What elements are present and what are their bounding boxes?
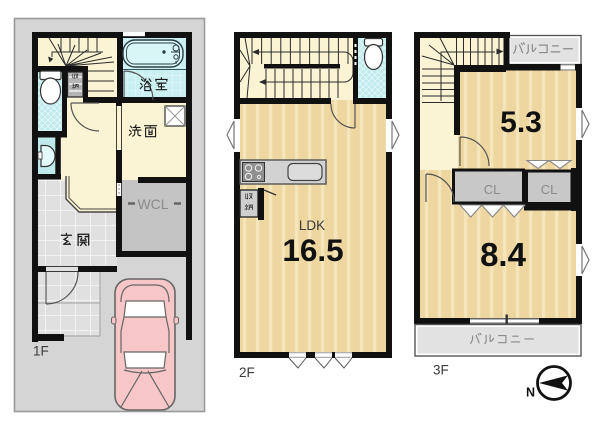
svg-text:8.4: 8.4: [480, 236, 527, 273]
svg-text:LDK: LDK: [299, 218, 325, 233]
svg-text:2F: 2F: [239, 365, 255, 380]
svg-text:CL: CL: [484, 182, 501, 197]
svg-text:CL: CL: [541, 182, 558, 197]
svg-text:16.5: 16.5: [282, 232, 343, 268]
svg-text:5.3: 5.3: [500, 106, 542, 139]
svg-text:WCL: WCL: [137, 196, 168, 212]
svg-text:1F: 1F: [33, 344, 49, 359]
svg-text:N: N: [526, 386, 535, 400]
svg-text:3F: 3F: [433, 363, 449, 378]
